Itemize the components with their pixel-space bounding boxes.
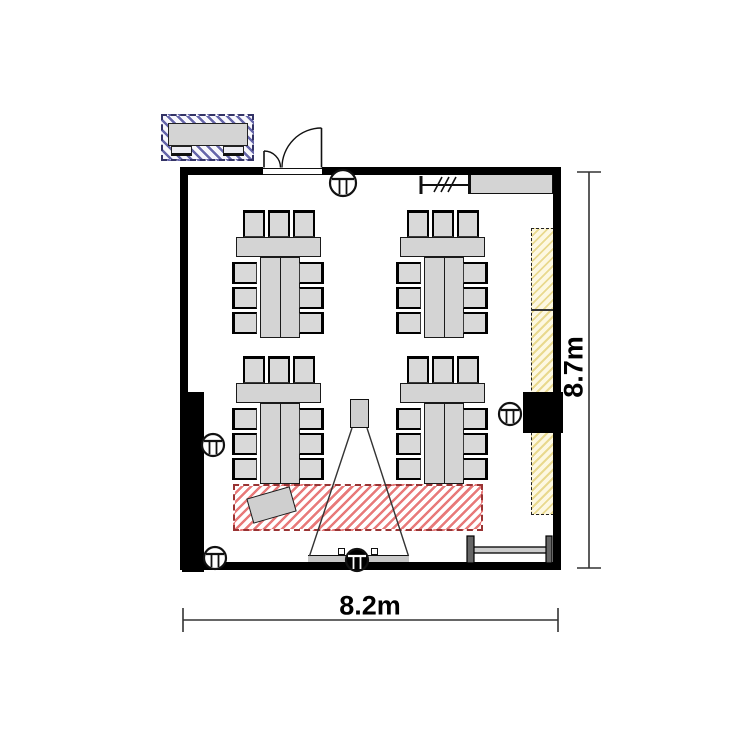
chair bbox=[243, 210, 265, 237]
chair bbox=[299, 433, 324, 455]
chair bbox=[232, 312, 257, 334]
chair bbox=[407, 356, 429, 383]
chair bbox=[396, 287, 421, 309]
head-table bbox=[400, 383, 485, 403]
chair bbox=[463, 458, 488, 480]
sideboard-cabinet bbox=[168, 123, 248, 146]
head-table bbox=[236, 237, 321, 257]
chair bbox=[457, 356, 479, 383]
furniture-layer bbox=[0, 0, 750, 750]
chair bbox=[268, 356, 290, 383]
width-dimension-label: 8.2m bbox=[339, 591, 401, 622]
chair bbox=[463, 408, 488, 430]
wall-top-right-segment bbox=[322, 167, 561, 175]
black-box-right bbox=[523, 392, 563, 433]
chair bbox=[396, 433, 421, 455]
wall-shelf bbox=[468, 174, 553, 194]
table-group-bottom-left bbox=[232, 355, 324, 484]
chair bbox=[232, 287, 257, 309]
chair bbox=[432, 210, 454, 237]
chair bbox=[396, 458, 421, 480]
yellow-strip-divider bbox=[531, 309, 554, 311]
wall-bottom bbox=[180, 562, 561, 570]
chair bbox=[232, 408, 257, 430]
yellow-hatch-strip bbox=[531, 228, 554, 515]
floor-plan: 8.2m 8.7m bbox=[0, 0, 750, 750]
table-group-bottom-right bbox=[396, 355, 488, 484]
chair bbox=[463, 262, 488, 284]
table-group-top-right bbox=[396, 209, 488, 338]
long-table bbox=[424, 257, 464, 338]
wall-top-left-segment bbox=[180, 167, 263, 175]
chair bbox=[396, 262, 421, 284]
chair bbox=[407, 210, 429, 237]
chair bbox=[268, 210, 290, 237]
cabinet-foot-right bbox=[223, 146, 244, 156]
chair bbox=[457, 210, 479, 237]
head-table bbox=[400, 237, 485, 257]
chair bbox=[299, 287, 324, 309]
chair bbox=[232, 458, 257, 480]
chair bbox=[299, 458, 324, 480]
head-table bbox=[236, 383, 321, 403]
chair bbox=[299, 312, 324, 334]
chair bbox=[232, 262, 257, 284]
projector bbox=[350, 399, 369, 428]
chair bbox=[299, 408, 324, 430]
chair bbox=[463, 433, 488, 455]
height-dimension-label: 8.7m bbox=[559, 336, 590, 398]
black-panel-left bbox=[182, 392, 204, 572]
long-table bbox=[260, 403, 300, 484]
chair bbox=[463, 312, 488, 334]
cabinet-foot-left bbox=[171, 146, 192, 156]
chair bbox=[232, 433, 257, 455]
chair bbox=[432, 356, 454, 383]
chair bbox=[293, 210, 315, 237]
chair bbox=[396, 312, 421, 334]
long-table bbox=[260, 257, 300, 338]
table-group-top-left bbox=[232, 209, 324, 338]
screen-bracket-right bbox=[371, 548, 378, 555]
door-threshold bbox=[263, 168, 322, 175]
chair bbox=[463, 287, 488, 309]
chair bbox=[299, 262, 324, 284]
chair bbox=[396, 408, 421, 430]
chair bbox=[243, 356, 265, 383]
screen-bracket-left bbox=[338, 548, 345, 555]
long-table bbox=[424, 403, 464, 484]
chair bbox=[293, 356, 315, 383]
